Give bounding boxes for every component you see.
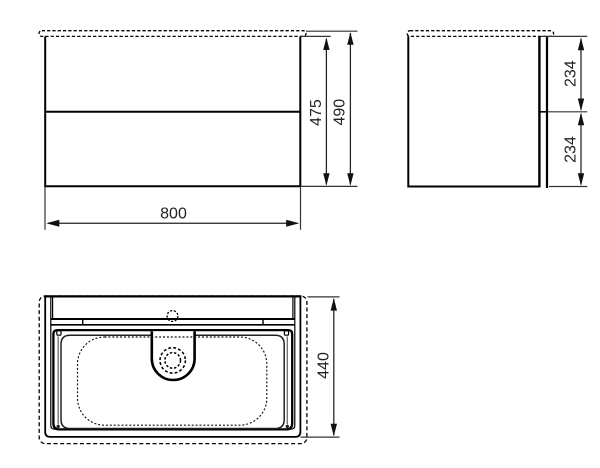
svg-text:234: 234 bbox=[563, 136, 580, 163]
svg-text:490: 490 bbox=[331, 99, 348, 126]
svg-text:234: 234 bbox=[563, 60, 580, 87]
svg-text:440: 440 bbox=[315, 352, 332, 379]
svg-text:800: 800 bbox=[160, 206, 187, 223]
svg-text:475: 475 bbox=[308, 99, 325, 126]
